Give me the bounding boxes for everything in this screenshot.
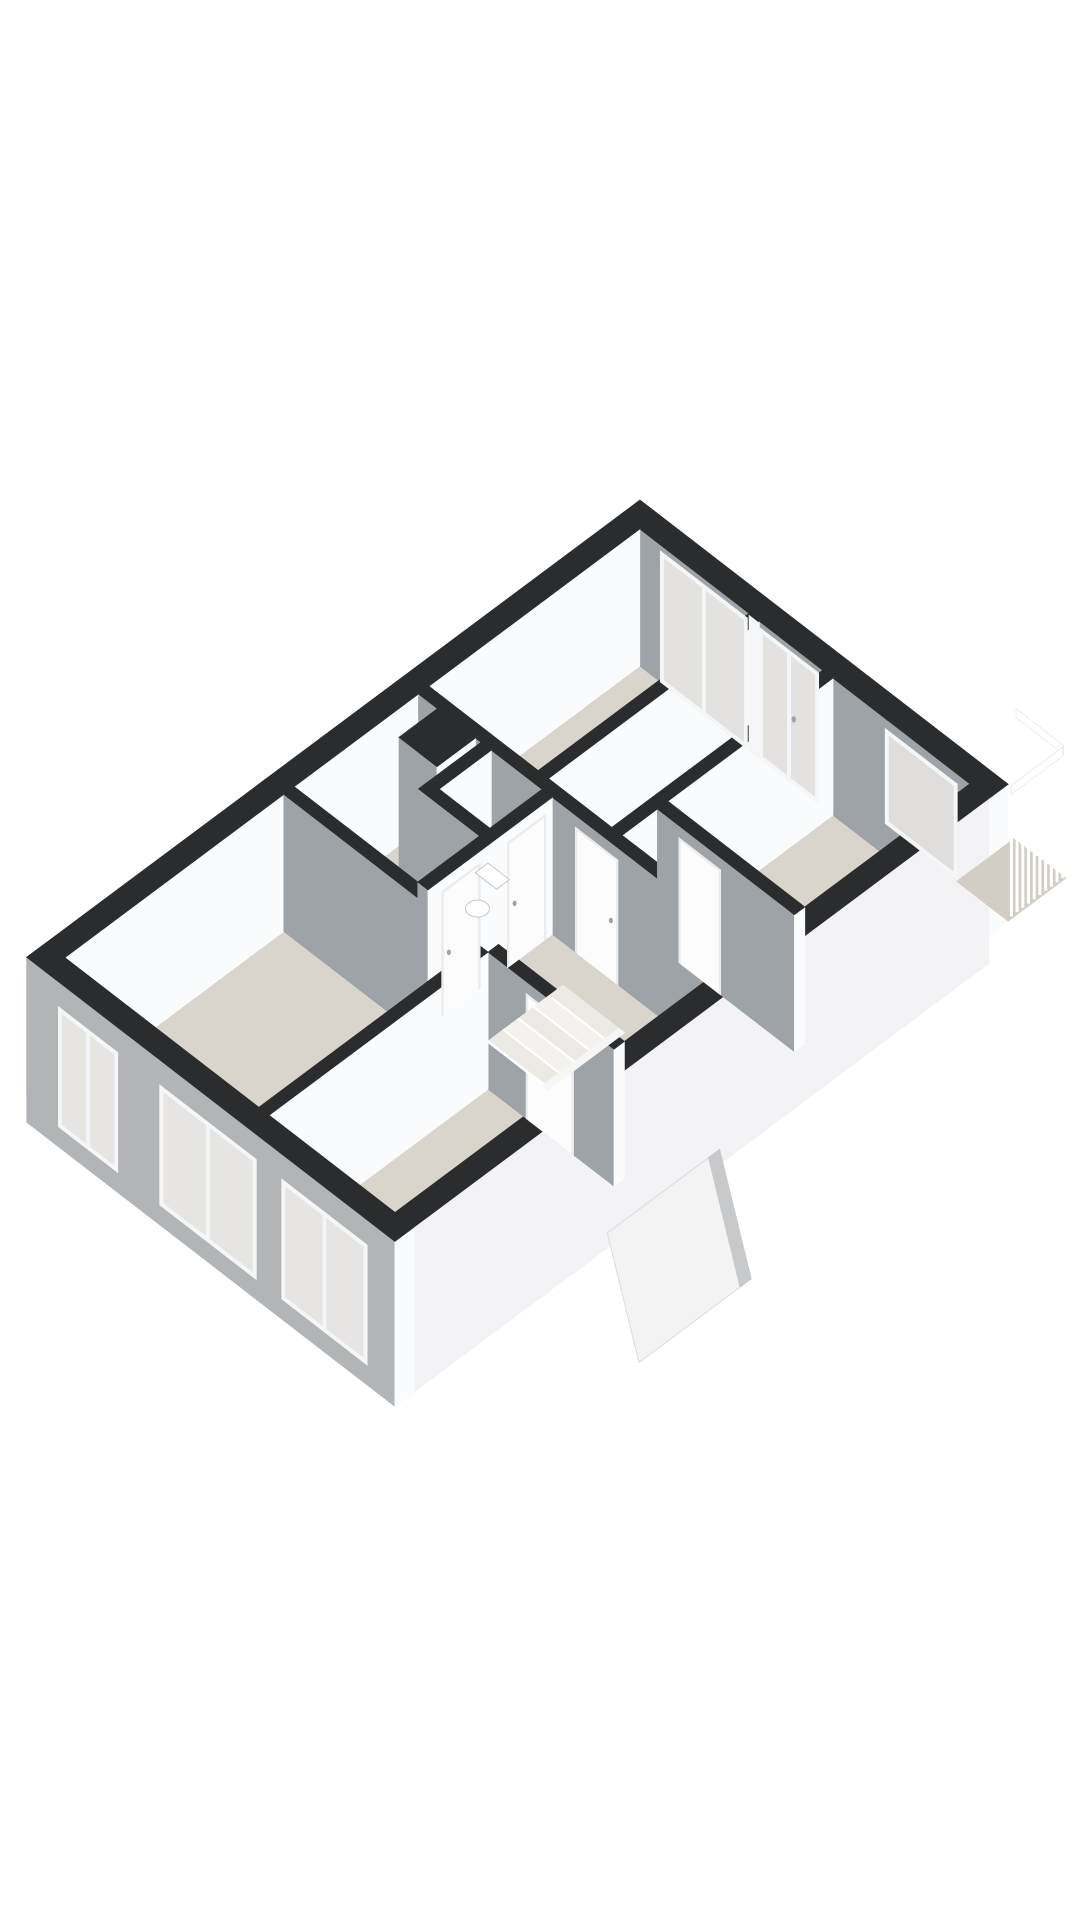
glass-mullion-wall-end: [749, 615, 759, 758]
sw-exterior-wall-face-se: [395, 1227, 414, 1406]
railing-run-ne-rail: [1016, 709, 1064, 755]
floorplan-page: [0, 0, 1080, 1920]
cross-wall-room-right-face-se: [794, 907, 804, 1052]
door-hall-south-panel: [444, 868, 478, 1015]
sw-window-3-mullion: [323, 1216, 326, 1328]
door-hall-north-panel: [510, 819, 544, 966]
door-hall-south-handle: [447, 950, 451, 956]
glass-door-left-mullion: [702, 588, 705, 711]
door-hall-north-handle: [513, 901, 517, 907]
glass-door-right-mullion: [787, 654, 790, 777]
sw-window-1-mullion: [87, 1033, 90, 1145]
toilet-bowl: [465, 900, 489, 917]
glass-door-right-handle: [792, 716, 796, 722]
floorplan-3d-rendering: [0, 0, 1080, 1920]
room-se-north-wall-face-se: [614, 1041, 624, 1186]
door-corridor-handle: [609, 918, 613, 924]
sw-window-2-mullion: [206, 1126, 209, 1238]
